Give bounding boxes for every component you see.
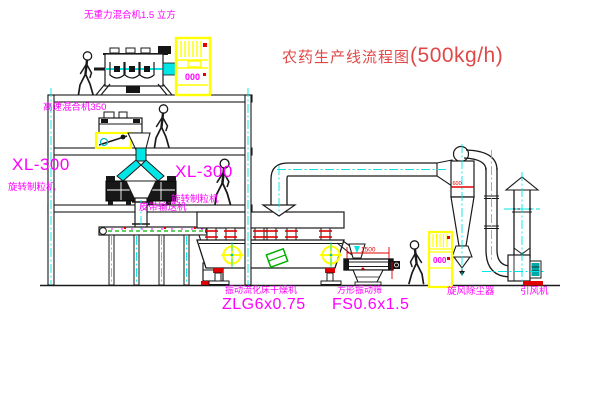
diagram-title: 农药生产线流程图(500kg/h) bbox=[282, 44, 503, 68]
square-sieve-machine: 1500 bbox=[344, 244, 400, 285]
title-text: 农药生产线流程图 bbox=[282, 46, 410, 67]
worker-level2 bbox=[155, 105, 170, 148]
label-sieve-model: FS0.6x1.5 bbox=[332, 297, 409, 313]
worker-ground bbox=[409, 241, 424, 284]
label-granulator-left-model: XL-300 bbox=[12, 156, 70, 173]
belt-conveyor-machine bbox=[99, 227, 213, 285]
cabinet-display: 000 bbox=[433, 256, 447, 265]
control-cabinet-top: 000 bbox=[176, 38, 210, 95]
dryer-legs bbox=[209, 268, 341, 285]
induced-draft-fan-machine bbox=[508, 255, 543, 286]
label-gravity-mixer: 无重力混合机1.5 立方 bbox=[84, 11, 176, 21]
title-capacity: (500kg/h) bbox=[410, 44, 503, 68]
label-fan: 引风机 bbox=[520, 287, 549, 297]
cyclone-mark: 600 bbox=[453, 181, 462, 187]
cabinet-display: 000 bbox=[185, 72, 200, 82]
label-belt-conveyor: 皮带输送机 bbox=[139, 203, 187, 213]
control-cabinet-bottom: 000 bbox=[429, 232, 452, 287]
dryer-nozzles bbox=[205, 228, 332, 240]
label-high-speed-mixer: 高速混合机350 bbox=[43, 103, 106, 113]
flow-diagram-canvas: 000 bbox=[0, 0, 600, 403]
label-dryer-model: ZLG6x0.75 bbox=[222, 297, 306, 313]
high-speed-mixer-machine bbox=[96, 112, 150, 152]
sieve-length-dim: 1500 bbox=[361, 247, 376, 254]
label-sieve-name: 方形振动筛 bbox=[337, 286, 382, 295]
gravity-mixer-machine bbox=[94, 46, 178, 95]
label-cyclone: 旋风除尘器 bbox=[447, 287, 495, 297]
worker-top-platform bbox=[79, 52, 94, 95]
label-granulator-left-name: 旋转制粒机 bbox=[8, 183, 56, 193]
label-dryer-name: 振动流化床干燥机 bbox=[225, 286, 297, 295]
fluid-bed-dryer-machine bbox=[197, 212, 344, 285]
label-granulator-mid-model: XL-300 bbox=[175, 163, 233, 180]
